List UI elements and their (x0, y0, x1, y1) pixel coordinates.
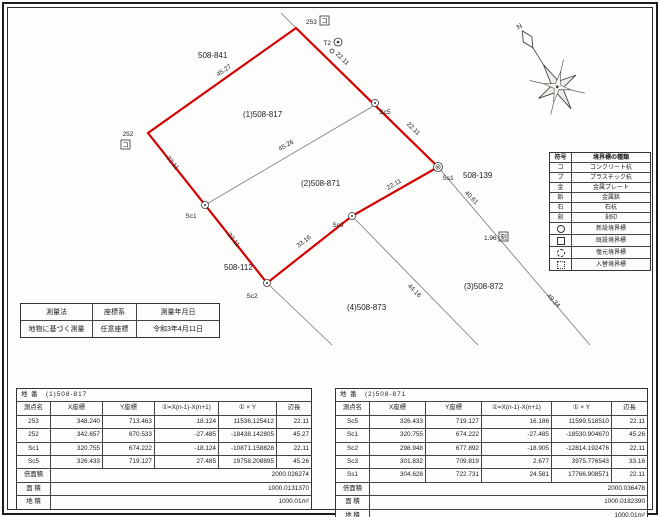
value-cell: 722.731 (426, 469, 482, 482)
circle-dashed-marker-icon (557, 249, 565, 257)
point-253-box-label: コ (321, 17, 328, 25)
value-cell: 709.819 (426, 456, 482, 469)
label-parcel-3: (3)508-872 (464, 282, 504, 291)
boundary-ext-sc3 (352, 216, 478, 345)
value-cell: 22.11 (277, 416, 311, 429)
value-cell: 19758.208895 (219, 456, 277, 469)
column-header: ①=X(n-1)-X(n+1) (155, 402, 219, 415)
point-name-cell: Sc1 (336, 429, 370, 442)
value-cell: 320.755 (51, 443, 103, 456)
legend-symbol (550, 259, 572, 270)
column-header: 辺長 (277, 402, 311, 415)
value-cell: -27.485 (482, 429, 552, 442)
value-cell: 3975.776543 (552, 456, 612, 469)
point-name-cell: Sc3 (336, 456, 370, 469)
point-252-box-label: コ (122, 141, 129, 149)
value-cell: 11599.518510 (552, 416, 612, 429)
value-cell: 348.240 (51, 416, 103, 429)
table-title: 地 番 (1)508-817 (17, 389, 311, 402)
label-neighbor-841: 508-841 (198, 51, 228, 60)
point-sc3-label: Sc3 (332, 222, 344, 229)
value-cell: 304.628 (370, 469, 426, 482)
edge-label-diagonal: 45.26 (277, 138, 295, 152)
legend-row: 石石杭 (550, 203, 650, 213)
legend-row: 新設境界標 (550, 223, 650, 235)
point-sc1-marker: Sc1 (185, 202, 208, 221)
legend-row: 金金属プレート (550, 183, 650, 193)
legend-row: 入替境界標 (550, 259, 650, 270)
edge-label-ext-4061: 40.61 (463, 190, 480, 207)
footer-value: 1000.0182390 (370, 496, 647, 509)
label-parcel-1: (1)508-817 (243, 110, 283, 119)
point-t2-label: T2 (323, 40, 331, 47)
legend-row: 復元境界標 (550, 247, 650, 259)
value-cell: -10871.158828 (219, 443, 277, 456)
point-sc2-marker: Sc2 (246, 280, 270, 301)
column-header: ①=X(n-1)-X(n+1) (482, 402, 552, 415)
value-cell: 670.533 (103, 429, 155, 442)
footer-value: 1000.01m² (370, 510, 647, 517)
legend-header-type: 境界標の種類 (572, 153, 650, 163)
point-sc5-label: Sc5 (379, 109, 391, 116)
point-sc3-marker: Sc3 (332, 213, 355, 230)
value-cell: 326.433 (370, 416, 426, 429)
value-cell: 674.222 (103, 443, 155, 456)
label-parcel-2: (2)508-871 (301, 179, 341, 188)
legend-row: ココンクリート杭 (550, 163, 650, 173)
value-cell: 18.124 (155, 416, 219, 429)
boundary-ext-253 (281, 13, 296, 28)
footer-label: 地 積 (336, 510, 370, 517)
boundary-ext-sc2 (267, 283, 332, 345)
point-name-cell: Sc1 (17, 443, 51, 456)
column-header: ① × Y (552, 402, 612, 415)
legend-symbol (550, 247, 572, 259)
value-cell: 45.26 (277, 456, 311, 469)
edge-label-sc5-ss1: 22.11 (405, 121, 421, 137)
value-cell: 16.186 (482, 416, 552, 429)
legend-symbol (550, 235, 572, 247)
value-cell: 22.11 (612, 469, 647, 482)
value-cell: 45.27 (277, 429, 311, 442)
legend-label: 石杭 (572, 203, 650, 213)
survey-date-value: 令和3年4月11日 (137, 321, 219, 337)
value-cell: -18.124 (155, 443, 219, 456)
legend-label: 刻印 (572, 213, 650, 223)
legend-label: 新設境界標 (572, 223, 650, 235)
coordinate-system-header: 座標系 (93, 304, 137, 321)
footer-label: 倍面積 (336, 483, 370, 496)
legend-symbol: コ (550, 163, 572, 173)
footer-value: 2000.026274 (51, 469, 311, 482)
value-cell: 298.948 (370, 443, 426, 456)
point-name-cell: Sc5 (336, 416, 370, 429)
coord-table-parcel1: 地 番 (1)508-817測点名X座標Y座標①=X(n-1)-X(n+1)① … (16, 388, 312, 510)
survey-map-sheet: コ 253 T2 252 コ Sc5 Sc1 Sc2 (0, 0, 660, 517)
value-cell: 713.463 (103, 416, 155, 429)
legend-symbol: 刻 (550, 213, 572, 223)
value-cell: 22.11 (612, 416, 647, 429)
value-cell: 674.222 (426, 429, 482, 442)
label-neighbor-139: 508-139 (463, 171, 493, 180)
point-name-cell: Ss1 (336, 469, 370, 482)
value-cell: 22.11 (277, 443, 311, 456)
legend-symbol: 金 (550, 183, 572, 193)
survey-info-value-row: 地物に基づく測量 任意座標 令和3年4月11日 (21, 321, 219, 337)
point-sc5-marker: Sc5 (372, 100, 391, 117)
legend-label: コンクリート杭 (572, 163, 650, 173)
red-parcel-outline (148, 28, 438, 283)
value-cell: 719.127 (426, 416, 482, 429)
survey-info-table: 測量法 座標系 測量年月日 地物に基づく測量 任意座標 令和3年4月11日 (20, 303, 220, 338)
coordinate-system-value: 任意座標 (93, 321, 137, 337)
footer-label: 地 積 (17, 496, 51, 508)
compass-north-label: N (516, 23, 524, 32)
label-neighbor-112: 508-112 (224, 263, 253, 272)
ext-196-value: 1.96 (484, 235, 497, 242)
legend-header-row: 符号 境界標の種類 (550, 153, 650, 163)
legend-header-symbol: 符号 (550, 153, 572, 163)
point-sc1-label: Sc1 (185, 213, 197, 220)
value-cell: 326.433 (51, 456, 103, 469)
table-title: 地 番 (2)508-871 (336, 389, 647, 402)
legend-row: 既設境界標 (550, 235, 650, 247)
footer-value: 1000.01m² (51, 496, 311, 508)
footer-value: 1000.0131370 (51, 483, 311, 496)
column-header: 測点名 (17, 402, 51, 415)
footer-label: 倍面積 (17, 469, 51, 482)
survey-method-header: 測量法 (21, 304, 93, 321)
legend-symbol (550, 223, 572, 235)
survey-info-header-row: 測量法 座標系 測量年月日 (21, 304, 219, 321)
compass-rose: N (499, 12, 589, 120)
legend-label: 既設境界標 (572, 235, 650, 247)
column-header: X座標 (370, 402, 426, 415)
footer-value: 2000.036478 (370, 483, 647, 496)
value-cell: 301.832 (370, 456, 426, 469)
point-name-cell: 253 (17, 416, 51, 429)
legend-row: ププラスチック杭 (550, 173, 650, 183)
column-header: X座標 (51, 402, 103, 415)
edge-label-ext-4934: 49.34 (545, 293, 562, 310)
legend-label: 復元境界標 (572, 247, 650, 259)
value-cell: 45.26 (612, 429, 647, 442)
value-cell: 677.892 (426, 443, 482, 456)
column-header: ① × Y (219, 402, 277, 415)
value-cell: -12814.192476 (552, 443, 612, 456)
value-cell: 33.16 (612, 456, 647, 469)
edge-label-sc2-sc3: 33.16 (296, 234, 313, 250)
legend-table: 符号 境界標の種類 ココンクリート杭ププラスチック杭金金属プレート鋲金属鋲石石杭… (549, 152, 651, 271)
value-cell: -18438.142805 (219, 429, 277, 442)
column-header: Y座標 (426, 402, 482, 415)
point-name-cell: Sc5 (17, 456, 51, 469)
legend-symbol: 鋲 (550, 193, 572, 203)
legend-label: プラスチック杭 (572, 173, 650, 183)
ext-196-mark: 刻 (500, 232, 507, 241)
value-cell: 320.755 (370, 429, 426, 442)
survey-method-value: 地物に基づく測量 (21, 321, 93, 337)
parcel-divider-line (205, 105, 375, 205)
point-sc2-label: Sc2 (246, 293, 258, 300)
column-header: 辺長 (612, 402, 647, 415)
square-dashed-marker-icon (557, 261, 565, 269)
legend-label: 金属鋲 (572, 193, 650, 203)
point-name-cell: 252 (17, 429, 51, 442)
point-name-cell: Sc2 (336, 443, 370, 456)
footer-label: 面 積 (17, 483, 51, 496)
value-cell: 17766.908571 (552, 469, 612, 482)
circle-marker-icon (557, 225, 565, 233)
value-cell: -18.905 (482, 443, 552, 456)
footer-label: 面 積 (336, 496, 370, 509)
legend-symbol: プ (550, 173, 572, 183)
label-parcel-4: (4)508-873 (347, 303, 387, 312)
value-cell: 24.581 (482, 469, 552, 482)
value-cell: -27.485 (155, 429, 219, 442)
point-252-label: 252 (123, 131, 134, 138)
edge-label-ext-196: 1.96 刻 (484, 232, 508, 242)
survey-date-header: 測量年月日 (137, 304, 219, 321)
legend-label: 入替境界標 (572, 259, 650, 270)
point-ss1-label: Ss1 (442, 175, 454, 182)
column-header: 測点名 (336, 402, 370, 415)
legend-label: 金属プレート (572, 183, 650, 193)
value-cell: -18530.904670 (552, 429, 612, 442)
value-cell: 11536.125412 (219, 416, 277, 429)
square-marker-icon (557, 237, 565, 245)
edge-label-top: 45.27 (215, 63, 233, 78)
value-cell: 2.677 (482, 456, 552, 469)
legend-row: 刻刻印 (550, 213, 650, 223)
point-253-marker: コ 253 (306, 16, 329, 26)
legend-symbol: 石 (550, 203, 572, 213)
value-cell: 22.11 (612, 443, 647, 456)
point-253-label: 253 (306, 19, 317, 26)
point-252-marker: 252 コ (121, 131, 134, 149)
value-cell: 342.657 (51, 429, 103, 442)
value-cell: 27.485 (155, 456, 219, 469)
legend-row: 鋲金属鋲 (550, 193, 650, 203)
coord-table-parcel2: 地 番 (2)508-871測点名X座標Y座標①=X(n-1)-X(n+1)① … (335, 388, 648, 517)
edge-label-253-sc5: 22.11 (334, 51, 350, 67)
value-cell: 719.127 (103, 456, 155, 469)
column-header: Y座標 (103, 402, 155, 415)
point-ss1-marker: Ss1 (434, 163, 454, 183)
